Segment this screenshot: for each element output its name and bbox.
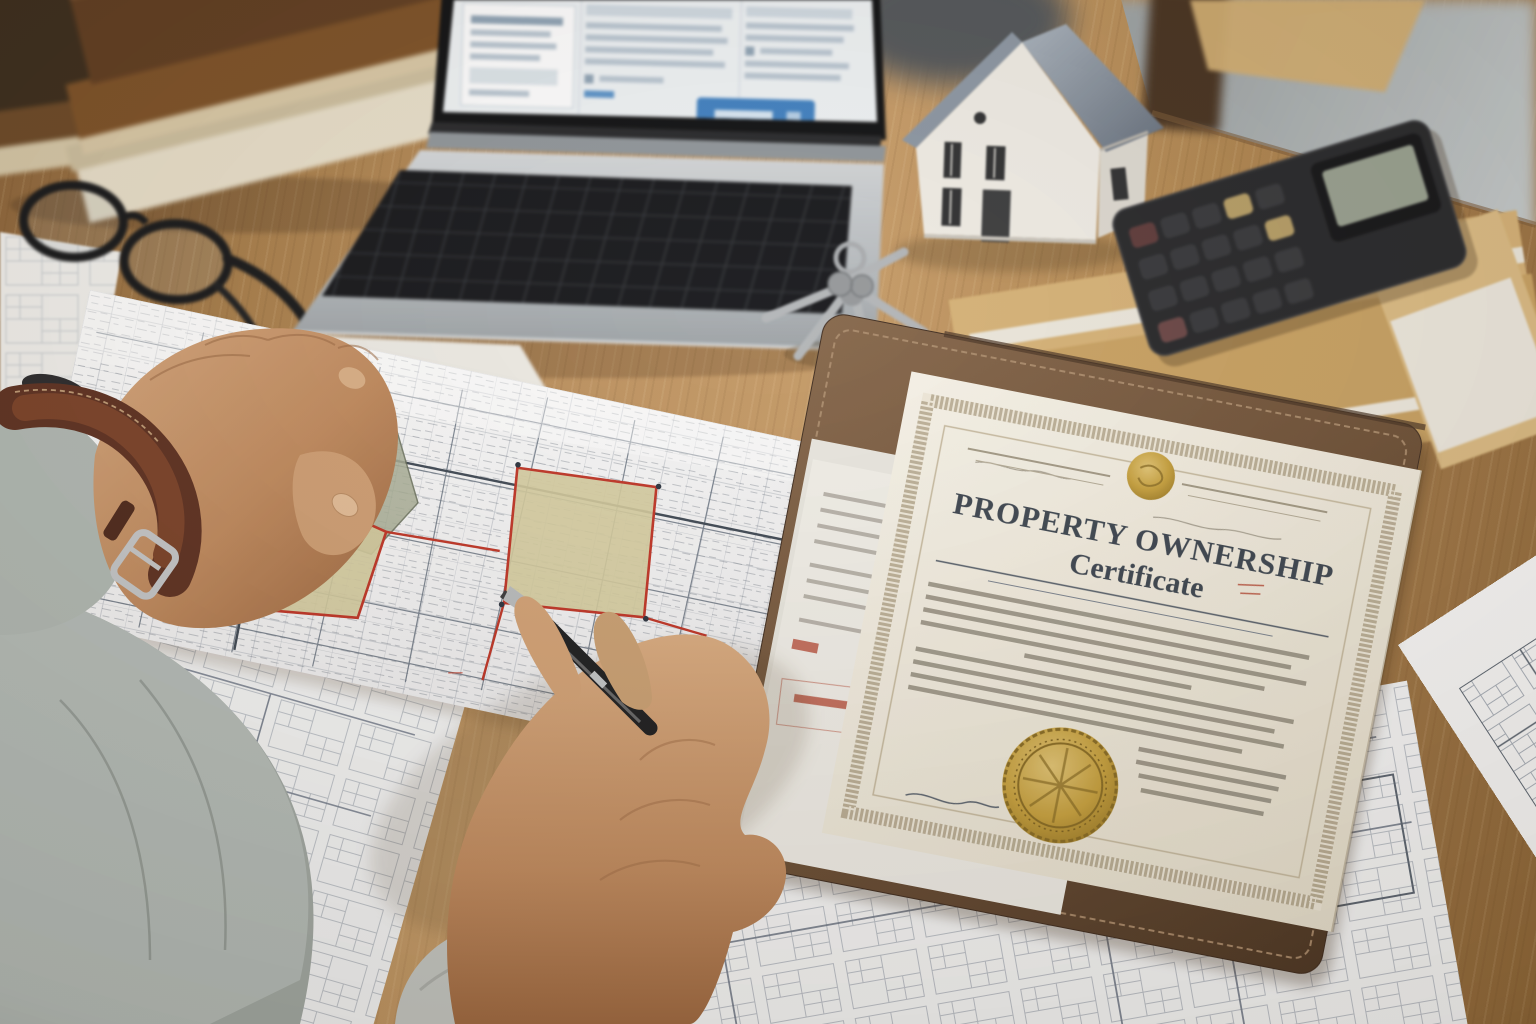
- scene-illustration: PROPERTY OWNERSHIP Certificate: [0, 0, 1536, 1024]
- manila-folder-top: [1190, 0, 1425, 92]
- attic-window: [974, 112, 986, 124]
- property-ownership-certificate: PROPERTY OWNERSHIP Certificate: [822, 371, 1422, 932]
- house-door: [981, 190, 1011, 243]
- desk-scene: PROPERTY OWNERSHIP Certificate: [0, 0, 1536, 1024]
- leather-document-folder: PROPERTY OWNERSHIP Certificate: [717, 311, 1435, 991]
